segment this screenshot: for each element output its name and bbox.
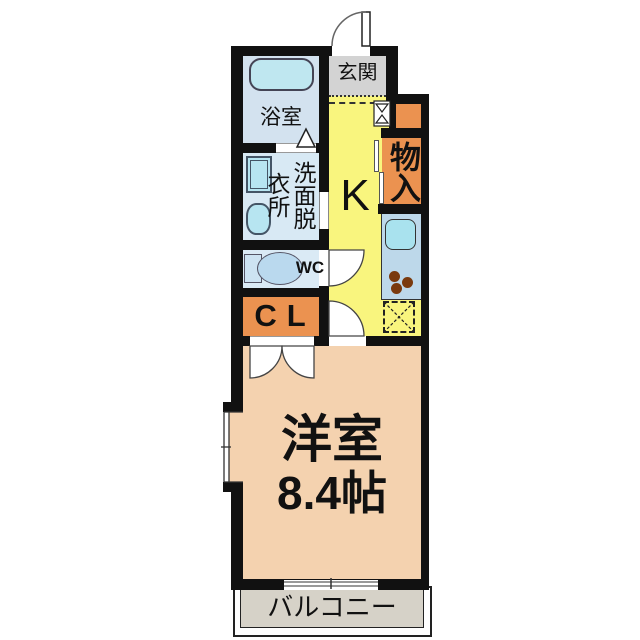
wall-storage-box-divider — [389, 104, 396, 128]
stove-burner-icon — [389, 271, 400, 282]
closet-door-opening — [250, 336, 314, 346]
entry-door-opening — [332, 46, 370, 56]
entrance-step-dotted-line — [329, 95, 386, 97]
entrance-boundary-dashed-line — [329, 102, 386, 104]
kitchen-door-opening — [329, 336, 366, 346]
window-stub-bottom — [223, 482, 243, 492]
washroom-label: 洗面脱 衣所 — [264, 150, 316, 240]
kitchen-sink-icon — [385, 219, 416, 250]
balcony-window — [284, 579, 378, 590]
wall-top — [231, 46, 332, 56]
wall-below-storage — [378, 204, 429, 214]
wc-label: WC — [294, 259, 326, 278]
bathtub-icon — [249, 58, 314, 91]
wall-wc-closet — [231, 288, 329, 297]
wall-below-storage-box — [381, 128, 429, 138]
closet-label: CL — [243, 299, 319, 333]
wall-left — [231, 46, 243, 588]
storage-upper-box — [396, 104, 421, 128]
wall-washroom-wc — [231, 240, 329, 250]
washroom-sliding-door — [319, 192, 329, 229]
entrance-label: 玄関 — [329, 62, 386, 84]
entry-door-leaf — [362, 12, 370, 46]
left-window-recess — [229, 412, 243, 482]
storage-sliding-door — [374, 140, 379, 172]
floor-plan: 玄関 浴室 洗面脱 衣所 WC CL K 物入 洋室 8.4帖 バルコニー — [0, 0, 640, 640]
storage-label: 物入 — [384, 139, 420, 205]
main-room-label: 洋室 — [243, 412, 421, 468]
refrigerator-space-dashed-box — [383, 301, 415, 333]
window-stub-top — [223, 402, 243, 412]
balcony-label: バルコニー — [240, 593, 424, 622]
stove-burner-icon — [402, 277, 413, 288]
main-room-size-label: 8.4帖 — [243, 468, 421, 519]
bathroom-label: 浴室 — [243, 106, 319, 129]
stove-burner-icon — [391, 283, 402, 294]
entry-door-swing — [332, 12, 366, 46]
kitchen-label: K — [329, 172, 381, 220]
